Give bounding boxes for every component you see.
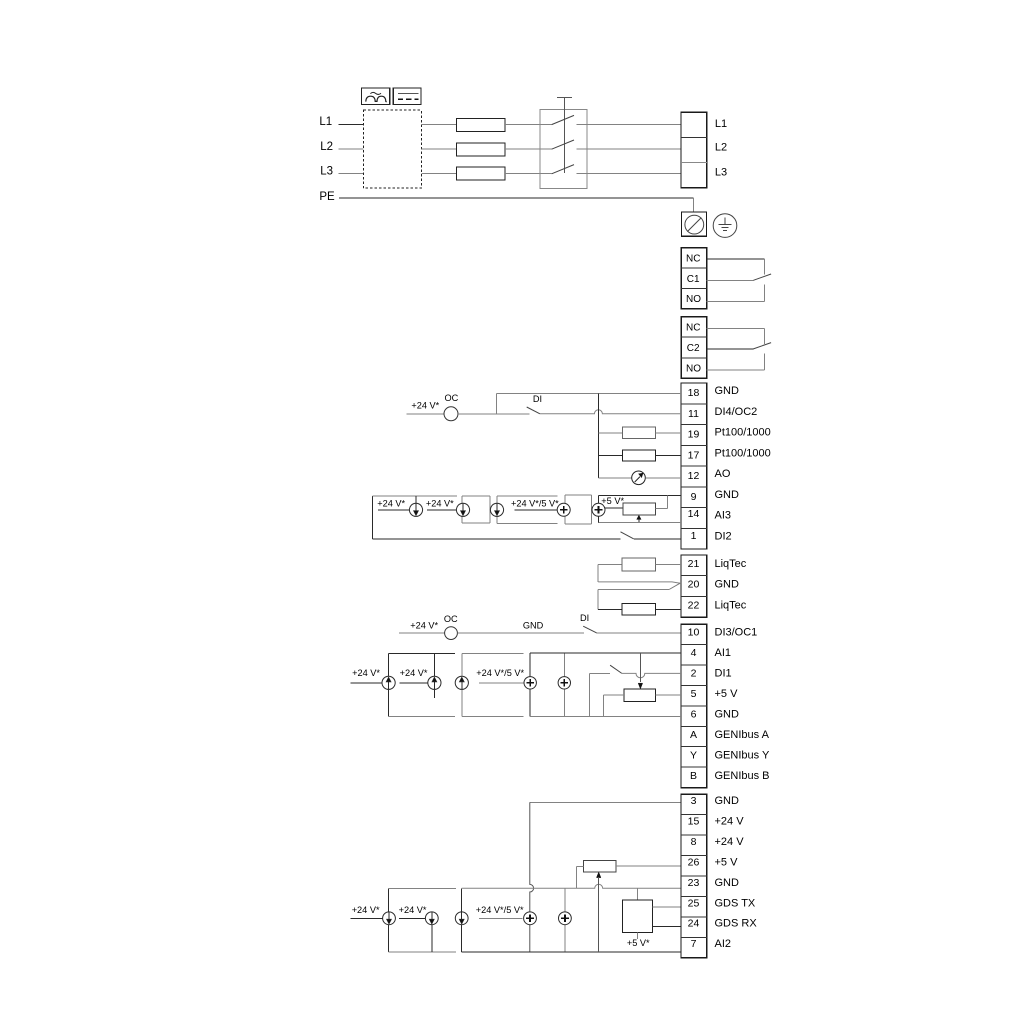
svg-text:+24 V*/5 V*: +24 V*/5 V* xyxy=(511,498,559,508)
svg-text:23: 23 xyxy=(688,877,700,889)
svg-text:24: 24 xyxy=(688,918,700,930)
svg-text:9: 9 xyxy=(691,491,697,503)
svg-text:NC: NC xyxy=(686,322,700,333)
svg-text:C1: C1 xyxy=(687,274,700,285)
svg-text:1: 1 xyxy=(691,530,697,542)
svg-text:2: 2 xyxy=(691,668,697,680)
svg-text:6: 6 xyxy=(691,708,697,720)
svg-text:11: 11 xyxy=(688,408,699,420)
svg-text:AI3: AI3 xyxy=(715,510,732,522)
svg-text:AI1: AI1 xyxy=(715,647,732,659)
svg-text:L3: L3 xyxy=(715,167,727,179)
svg-text:GND: GND xyxy=(715,385,740,397)
svg-text:+5 V*: +5 V* xyxy=(601,496,624,506)
svg-text:20: 20 xyxy=(688,579,700,591)
svg-text:DI: DI xyxy=(580,613,589,623)
svg-text:DI: DI xyxy=(533,394,542,404)
svg-text:17: 17 xyxy=(688,449,700,461)
svg-text:GND: GND xyxy=(715,579,740,591)
svg-text:NO: NO xyxy=(686,364,701,375)
svg-text:GDS RX: GDS RX xyxy=(715,918,758,930)
svg-text:PE: PE xyxy=(319,191,335,203)
svg-text:AI2: AI2 xyxy=(715,938,732,950)
svg-text:7: 7 xyxy=(691,938,697,950)
svg-text:OC: OC xyxy=(445,393,459,403)
svg-text:GENIbus B: GENIbus B xyxy=(715,770,770,782)
svg-text:L2: L2 xyxy=(320,141,333,153)
svg-text:3: 3 xyxy=(691,795,697,807)
svg-text:GND: GND xyxy=(715,877,740,889)
svg-text:B: B xyxy=(690,770,697,782)
svg-text:+24 V*: +24 V* xyxy=(352,905,380,915)
svg-text:L2: L2 xyxy=(715,142,727,154)
svg-text:25: 25 xyxy=(688,897,700,909)
svg-text:15: 15 xyxy=(688,815,700,827)
svg-text:AO: AO xyxy=(715,468,731,480)
svg-text:GND: GND xyxy=(715,708,740,720)
svg-text:19: 19 xyxy=(688,429,700,441)
svg-text:GND: GND xyxy=(523,621,544,631)
svg-text:+5 V: +5 V xyxy=(715,856,739,868)
svg-text:+24 V*/5 V*: +24 V*/5 V* xyxy=(476,668,524,678)
svg-text:Pt100/1000: Pt100/1000 xyxy=(715,427,771,439)
svg-text:5: 5 xyxy=(691,688,697,700)
svg-text:+24 V*: +24 V* xyxy=(400,668,428,678)
svg-text:Pt100/1000: Pt100/1000 xyxy=(715,447,771,459)
svg-text:Y: Y xyxy=(690,749,697,761)
svg-text:GDS TX: GDS TX xyxy=(715,897,756,909)
svg-text:21: 21 xyxy=(688,558,700,570)
svg-text:12: 12 xyxy=(688,470,700,482)
svg-text:L1: L1 xyxy=(319,116,332,128)
svg-text:10: 10 xyxy=(688,627,700,639)
svg-text:DI3/OC1: DI3/OC1 xyxy=(715,627,758,639)
svg-text:26: 26 xyxy=(688,856,700,868)
svg-text:+24 V*: +24 V* xyxy=(352,668,380,678)
svg-text:DI2: DI2 xyxy=(715,530,732,542)
svg-text:8: 8 xyxy=(691,836,697,848)
svg-text:LiqTec: LiqTec xyxy=(715,599,747,611)
svg-text:GENIbus A: GENIbus A xyxy=(715,729,770,741)
svg-text:+24 V*: +24 V* xyxy=(411,401,439,411)
svg-text:+24 V*: +24 V* xyxy=(377,498,405,508)
svg-text:NO: NO xyxy=(686,294,701,305)
svg-text:+24 V*: +24 V* xyxy=(410,621,438,631)
svg-text:4: 4 xyxy=(691,647,697,659)
svg-text:+24 V*: +24 V* xyxy=(426,498,454,508)
svg-text:NC: NC xyxy=(686,253,700,264)
svg-text:+24 V*/5 V*: +24 V*/5 V* xyxy=(476,905,524,915)
svg-text:A: A xyxy=(690,729,697,741)
svg-text:L1: L1 xyxy=(715,118,727,130)
svg-text:+24 V*: +24 V* xyxy=(399,905,427,915)
svg-text:GENIbus Y: GENIbus Y xyxy=(715,749,770,761)
svg-text:+24 V: +24 V xyxy=(715,815,745,827)
svg-text:GND: GND xyxy=(715,795,740,807)
svg-text:DI1: DI1 xyxy=(715,668,732,680)
svg-text:L3: L3 xyxy=(320,166,333,178)
svg-text:+24 V: +24 V xyxy=(715,836,745,848)
svg-text:22: 22 xyxy=(688,599,700,611)
svg-text:14: 14 xyxy=(688,508,700,520)
svg-text:OC: OC xyxy=(444,614,458,624)
svg-text:+5 V: +5 V xyxy=(715,688,739,700)
svg-text:GND: GND xyxy=(715,489,740,501)
svg-text:C2: C2 xyxy=(687,343,700,354)
svg-text:LiqTec: LiqTec xyxy=(715,558,747,570)
svg-text:DI4/OC2: DI4/OC2 xyxy=(715,406,758,418)
svg-text:18: 18 xyxy=(688,387,700,399)
svg-text:+5 V*: +5 V* xyxy=(627,938,650,948)
